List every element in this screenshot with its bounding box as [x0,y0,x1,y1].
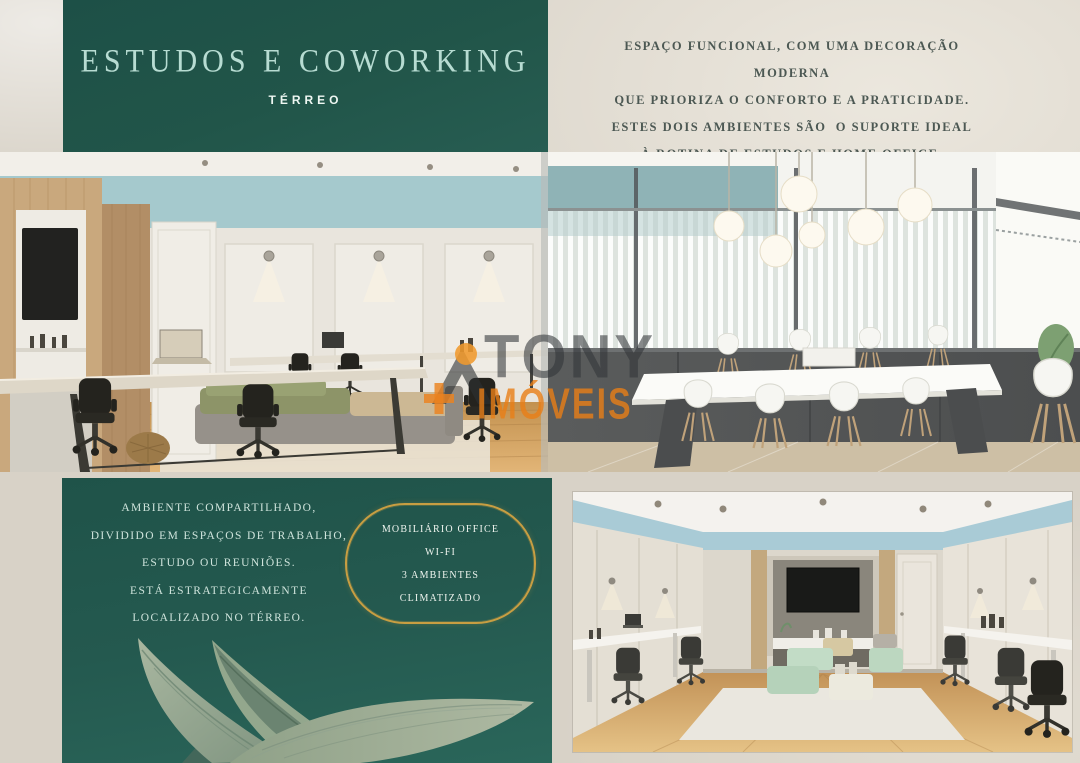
office-render-illustration [0,152,548,472]
wall-teal-band [548,166,778,212]
wall-blue-band [703,532,943,552]
office-chair [992,648,1029,712]
meeting-room-render-illustration [548,152,1080,472]
intro-paragraph: ESPAÇO FUNCIONAL, COM UMA DECORAÇÃO MODE… [592,33,992,168]
office-chair [940,636,969,687]
rug [679,688,965,740]
intro-line: QUE PRIORIZA O CONFORTO E A PRATICIDADE. [592,87,992,114]
photo-meeting-room [548,152,1080,472]
amenity-item: 3 AMBIENTES [402,564,479,587]
tv-screen [787,568,859,612]
amenity-item: WI-FI [425,541,456,564]
tv-screen [22,228,78,320]
laptop [322,332,344,348]
brochure-page: ESTUDOS E COWORKING TÉRREO ESPAÇO FUNCIO… [0,0,1080,763]
amenity-item: CLIMATIZADO [400,587,482,610]
tv-cabinet [0,178,102,472]
photo-coworking-office [0,152,548,472]
office-chair [677,637,705,686]
description-line: ESTUDO OU REUNIÕES. [76,550,362,578]
intro-line: ESPAÇO FUNCIONAL, COM UMA DECORAÇÃO MODE… [592,33,992,87]
coworking-render-illustration [573,492,1072,752]
page-subtitle: TÉRREO [268,93,342,107]
office-chair [463,378,500,442]
office-chair [237,384,280,458]
amenities-badge: MOBILIÁRIO OFFICE WI-FI 3 AMBIENTES CLIM… [345,503,536,624]
title-panel: ESTUDOS E COWORKING TÉRREO [63,0,548,152]
office-chair [73,378,118,456]
description-line: AMBIENTE COMPARTILHADO, [76,495,362,523]
description-line: DIVIDIDO EM ESPAÇOS DE TRABALHO, [76,523,362,551]
description-paragraph: AMBIENTE COMPARTILHADO, DIVIDIDO EM ESPA… [76,495,362,633]
intro-line: ESTES DOIS AMBIENTES SÃO O SUPORTE IDEAL [592,114,992,141]
description-line: ESTÁ ESTRATEGICAMENTE [76,578,362,606]
page-title: ESTUDOS E COWORKING [81,44,531,81]
photo-coworking-room [573,492,1072,752]
description-line: LOCALIZADO NO TÉRREO. [76,605,362,633]
description-panel: AMBIENTE COMPARTILHADO, DIVIDIDO EM ESPA… [62,478,552,763]
office-chair [611,648,644,705]
amenity-item: MOBILIÁRIO OFFICE [382,518,499,541]
